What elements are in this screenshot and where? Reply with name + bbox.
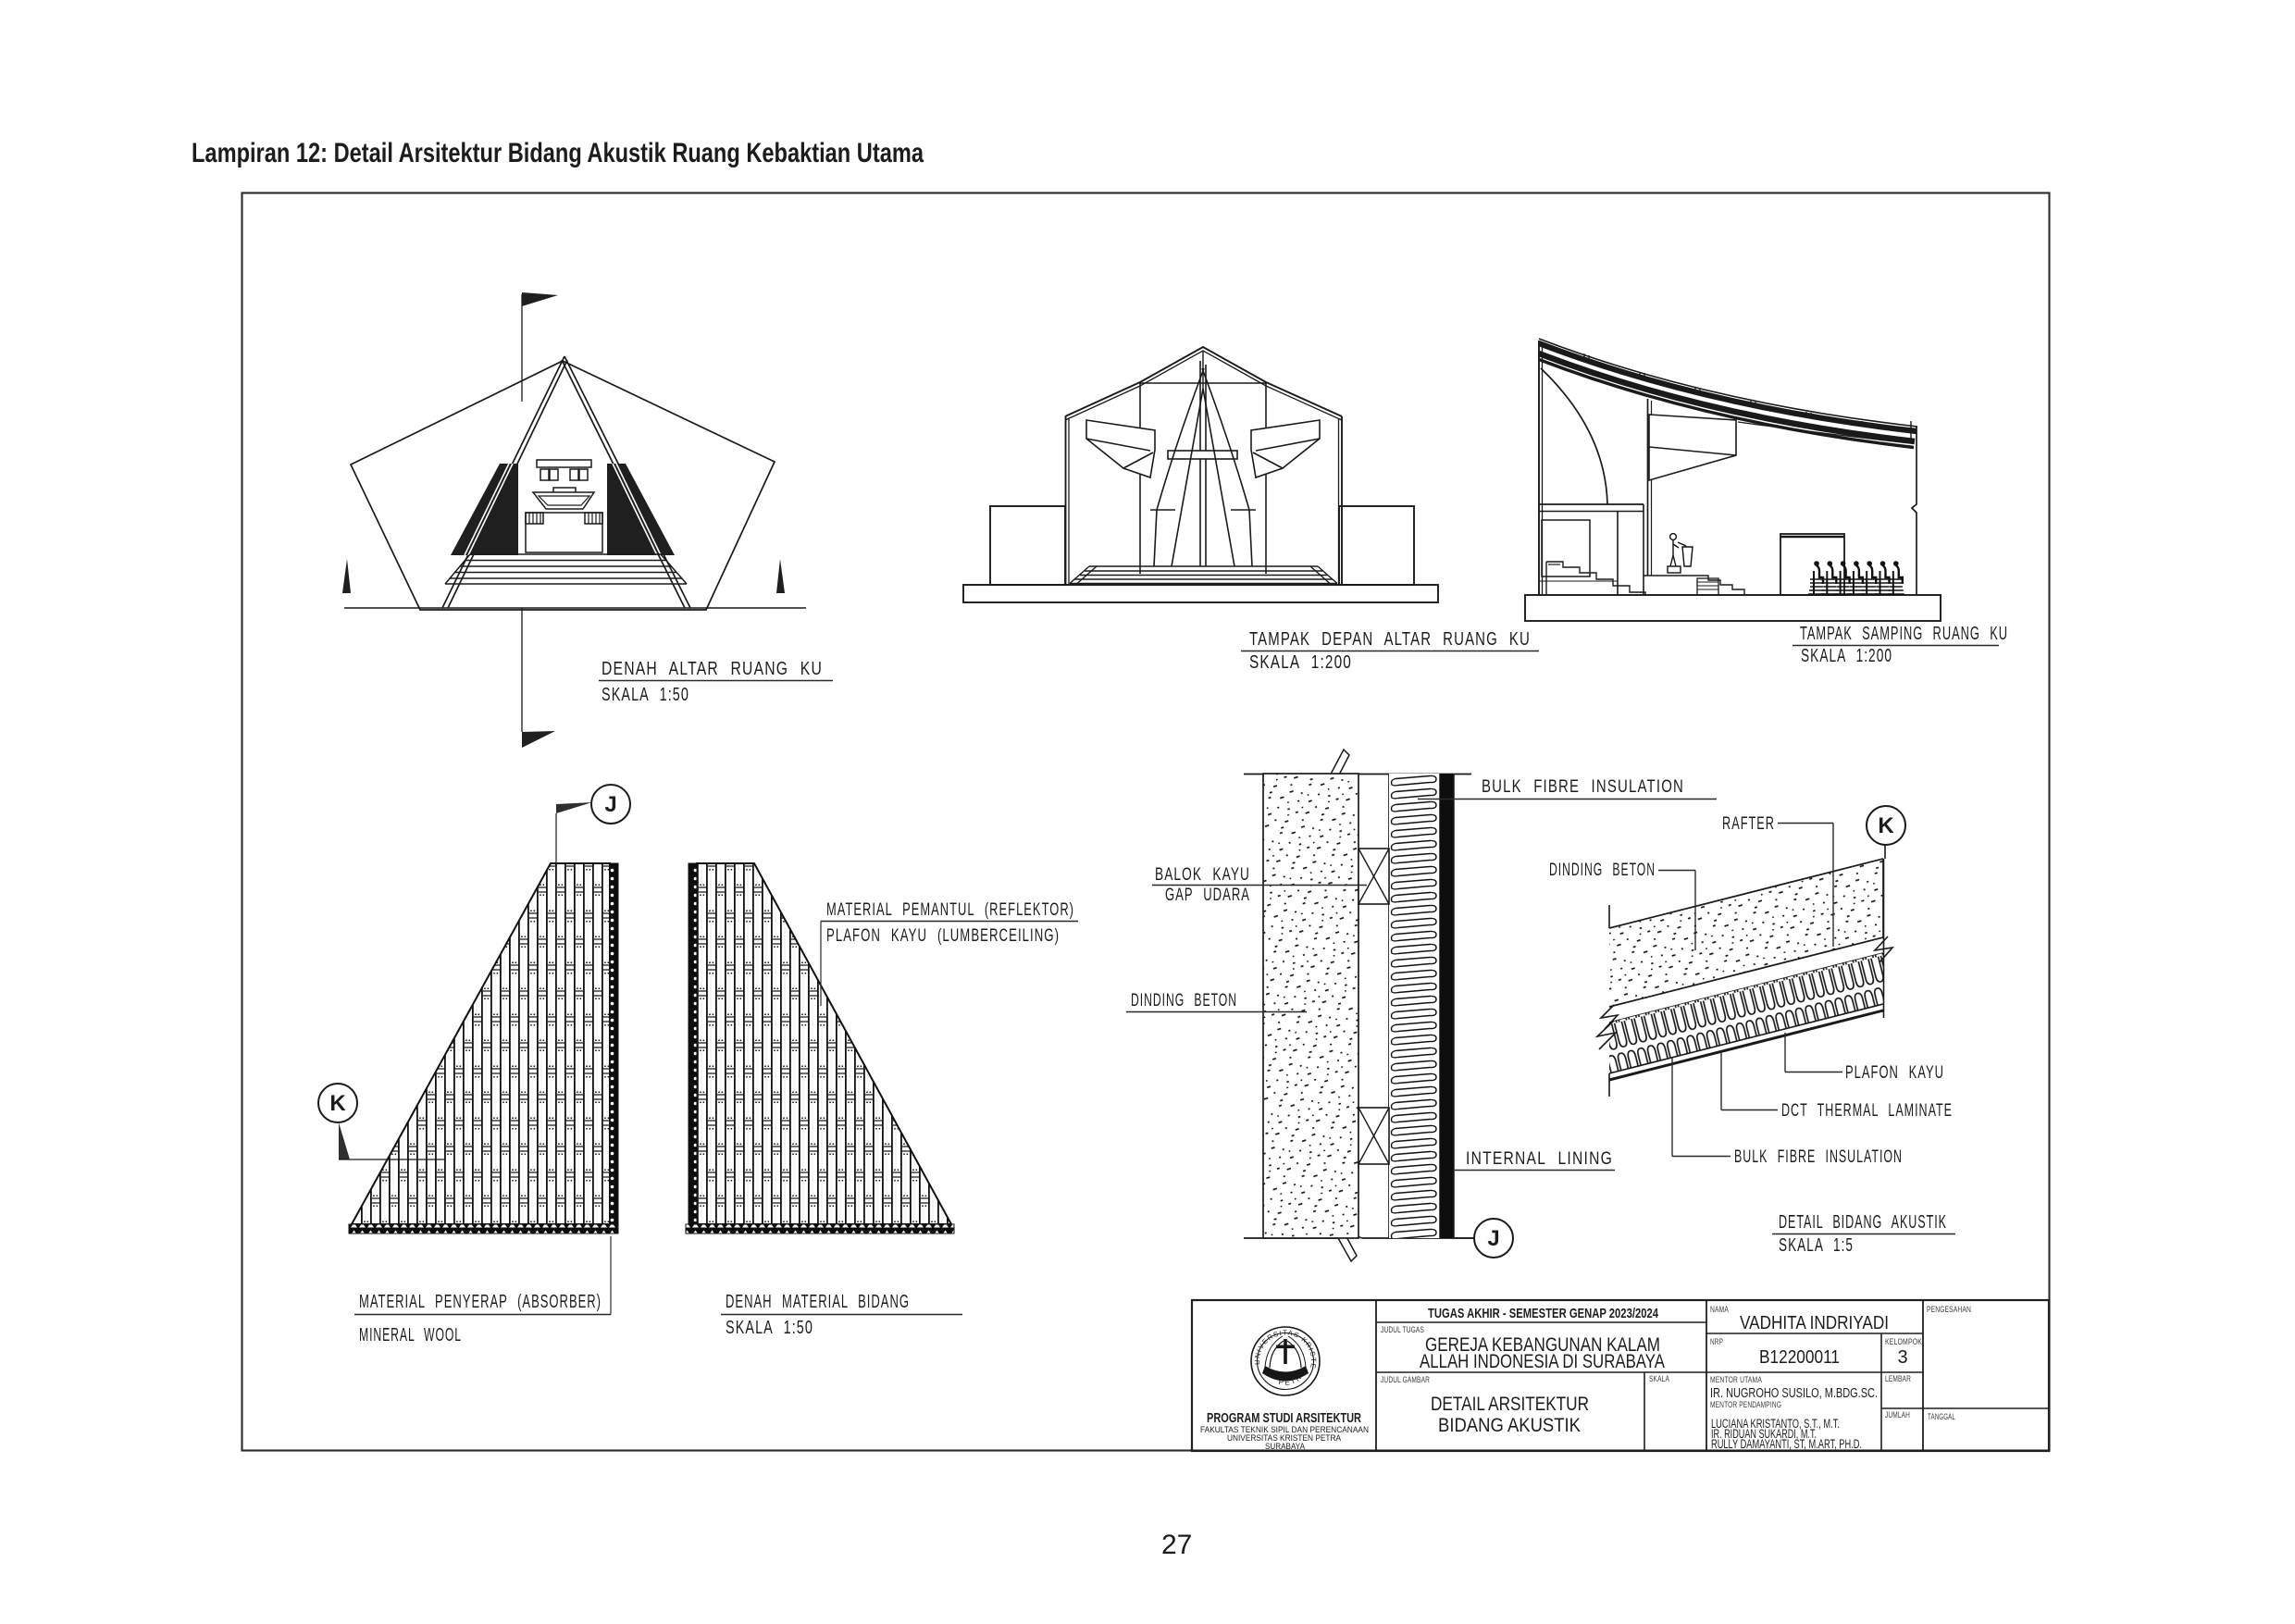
svg-text:SKALA 1:50: SKALA 1:50 bbox=[602, 685, 689, 705]
svg-text:TAMPAK SAMPING RUANG KU: TAMPAK SAMPING RUANG KU bbox=[1800, 624, 2008, 644]
svg-text:BULK FIBRE INSULATION: BULK FIBRE INSULATION bbox=[1734, 1147, 1903, 1167]
svg-text:INTERNAL LINING: INTERNAL LINING bbox=[1466, 1149, 1613, 1169]
svg-text:MENTOR UTAMA: MENTOR UTAMA bbox=[1710, 1375, 1762, 1384]
svg-text:DCT THERMAL LAMINATE: DCT THERMAL LAMINATE bbox=[1781, 1101, 1953, 1121]
svg-text:TUGAS AKHIR - SEMESTER GENAP 2: TUGAS AKHIR - SEMESTER GENAP 2023/2024 bbox=[1428, 1306, 1658, 1321]
svg-text:DETAIL ARSITEKTUR: DETAIL ARSITEKTUR bbox=[1431, 1394, 1589, 1415]
svg-text:DENAH MATERIAL BIDANG: DENAH MATERIAL BIDANG bbox=[726, 1292, 910, 1312]
svg-text:DINDING BETON: DINDING BETON bbox=[1131, 991, 1237, 1010]
svg-text:LEMBAR: LEMBAR bbox=[1885, 1374, 1911, 1383]
svg-text:BULK FIBRE INSULATION: BULK FIBRE INSULATION bbox=[1482, 777, 1684, 797]
svg-text:JUDUL TUGAS: JUDUL TUGAS bbox=[1381, 1325, 1424, 1334]
svg-text:3: 3 bbox=[1897, 1347, 1907, 1368]
svg-text:RAFTER: RAFTER bbox=[1722, 814, 1775, 834]
svg-text:NRP: NRP bbox=[1710, 1337, 1723, 1346]
svg-text:MATERIAL PENYERAP (ABSORBER): MATERIAL PENYERAP (ABSORBER) bbox=[359, 1292, 602, 1312]
svg-text:VADHITA INDRIYADI: VADHITA INDRIYADI bbox=[1740, 1313, 1889, 1333]
svg-text:DENAH ALTAR RUANG KU: DENAH ALTAR RUANG KU bbox=[602, 659, 823, 679]
svg-text:SKALA 1:200: SKALA 1:200 bbox=[1249, 652, 1352, 673]
svg-text:JUMLAH: JUMLAH bbox=[1885, 1410, 1910, 1419]
svg-text:PROGRAM STUDI ARSITEKTUR: PROGRAM STUDI ARSITEKTUR bbox=[1207, 1411, 1361, 1426]
svg-text:RULLY DAMAYANTI, ST, M.ART, PH: RULLY DAMAYANTI, ST, M.ART, PH.D. bbox=[1711, 1437, 1862, 1451]
svg-text:K: K bbox=[1878, 813, 1894, 838]
svg-text:PLAFON KAYU: PLAFON KAYU bbox=[1845, 1063, 1944, 1083]
svg-text:J: J bbox=[1487, 1226, 1499, 1251]
svg-text:SKALA 1:5: SKALA 1:5 bbox=[1779, 1235, 1854, 1256]
svg-text:MENTOR PENDAMPING: MENTOR PENDAMPING bbox=[1710, 1400, 1781, 1409]
svg-text:BALOK KAYU: BALOK KAYU bbox=[1155, 865, 1250, 885]
svg-text:TAMPAK DEPAN ALTAR RUANG KU: TAMPAK DEPAN ALTAR RUANG KU bbox=[1249, 629, 1531, 650]
svg-text:PLAFON KAYU (LUMBERCEILING): PLAFON KAYU (LUMBERCEILING) bbox=[826, 926, 1060, 946]
svg-text:27: 27 bbox=[1161, 1530, 1192, 1560]
svg-text:KELOMPOK: KELOMPOK bbox=[1885, 1337, 1922, 1346]
svg-text:ALLAH INDONESIA DI SURABAYA: ALLAH INDONESIA DI SURABAYA bbox=[1420, 1351, 1665, 1372]
svg-text:PENGESAHAN: PENGESAHAN bbox=[1927, 1305, 1971, 1314]
svg-text:DINDING BETON: DINDING BETON bbox=[1549, 861, 1656, 880]
svg-text:SKALA: SKALA bbox=[1649, 1374, 1669, 1383]
svg-text:J: J bbox=[604, 792, 616, 817]
svg-text:K: K bbox=[329, 1091, 346, 1116]
svg-text:MATERIAL PEMANTUL (REFLEKTOR): MATERIAL PEMANTUL (REFLEKTOR) bbox=[826, 900, 1074, 920]
svg-text:Lampiran 12: Detail Arsitektur: Lampiran 12: Detail Arsitektur Bidang Ak… bbox=[192, 138, 924, 168]
svg-text:GAP UDARA: GAP UDARA bbox=[1165, 886, 1250, 905]
svg-text:SKALA 1:50: SKALA 1:50 bbox=[726, 1318, 813, 1338]
svg-text:DETAIL BIDANG AKUSTIK: DETAIL BIDANG AKUSTIK bbox=[1779, 1212, 1947, 1233]
svg-text:SURABAYA: SURABAYA bbox=[1265, 1442, 1306, 1452]
svg-text:MINERAL WOOL: MINERAL WOOL bbox=[359, 1325, 462, 1345]
svg-text:JUDUL GAMBAR: JUDUL GAMBAR bbox=[1381, 1375, 1430, 1384]
svg-text:IR. NUGROHO SUSILO, M.BDG.SC.: IR. NUGROHO SUSILO, M.BDG.SC. bbox=[1710, 1385, 1878, 1401]
svg-text:NAMA: NAMA bbox=[1710, 1305, 1729, 1314]
svg-text:SKALA 1:200: SKALA 1:200 bbox=[1801, 646, 1892, 666]
svg-text:BIDANG AKUSTIK: BIDANG AKUSTIK bbox=[1438, 1415, 1581, 1436]
svg-text:B12200011: B12200011 bbox=[1759, 1347, 1840, 1368]
svg-text:TANGGAL: TANGGAL bbox=[1928, 1412, 1955, 1421]
